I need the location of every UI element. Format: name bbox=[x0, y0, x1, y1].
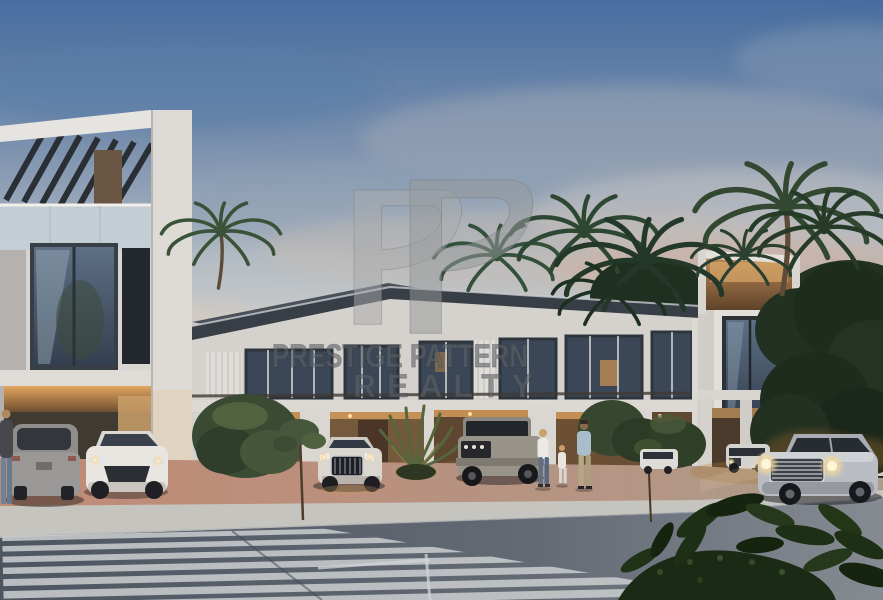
left-building-window bbox=[30, 243, 150, 370]
render-canvas: PRESTIGE PATTERN REALTY bbox=[0, 0, 883, 600]
suv-gray-parked bbox=[4, 424, 84, 507]
offroad-suv-tan bbox=[456, 417, 544, 486]
